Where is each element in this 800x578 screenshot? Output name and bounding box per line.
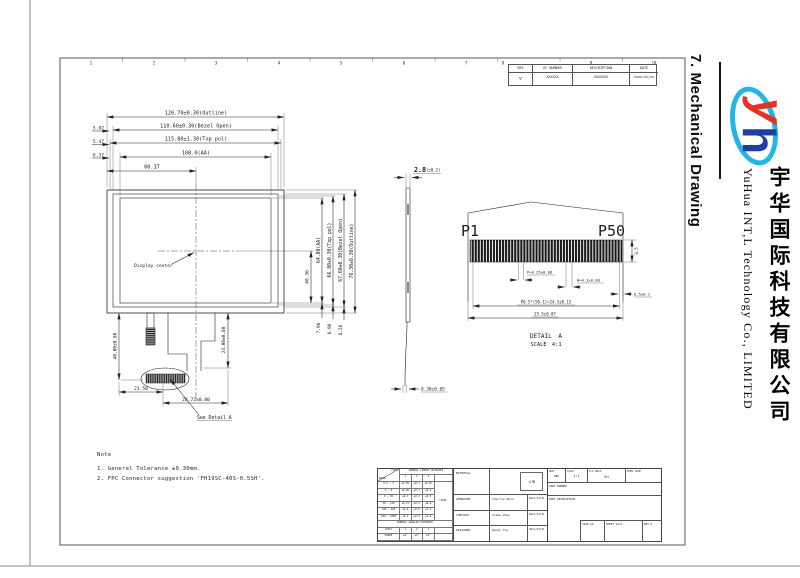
rev-header: DATE [630, 65, 658, 73]
tolerance-range: 120 ~ 400 [378, 508, 400, 515]
sheet-value: 1of1 [616, 522, 622, 526]
tolerance-value: ±0.1 [400, 495, 412, 502]
zone-number: 2 [153, 61, 156, 66]
angular-value: ±3° [423, 534, 435, 541]
tolerance-level-label: LEVEL [391, 469, 398, 473]
zone-number: 3 [215, 61, 218, 66]
sheet-label: SHEET [606, 522, 614, 526]
dim-outline-width: 120.70±0.30(Outline) [165, 111, 227, 117]
angle-projection-icon: ⊕◁ [589, 474, 624, 479]
company-logo: y h [718, 84, 788, 172]
note-line: 1. General Tolerance ±0.30mm. [97, 466, 265, 472]
checked-row: CHECKED Cosmo Zhou 2011/12/21 [454, 511, 547, 527]
designed-name: Karen You [490, 526, 528, 541]
angle-label: 3rd ANGLE [589, 470, 624, 473]
logo-letter-h: h [732, 126, 786, 154]
angular-level: 3 [423, 528, 435, 535]
tolerance-range-label: RANGE [379, 477, 386, 481]
approved-date: 2011/12/21 [528, 495, 547, 510]
rev-date: xxxx/xx/xx [630, 73, 658, 85]
see-detail-label: See Detail A [197, 415, 232, 421]
tolerance-value: ±1.2 [423, 508, 435, 515]
display-center-label: Display center [134, 263, 173, 269]
revision-table: REV EC NUMBER DESCRIPTION DATE ▽ XXXXXX … [508, 64, 657, 86]
company-name-cn: 宇华国际科技有限公司 [764, 166, 794, 426]
model-name-label: MODEL NAME [627, 470, 660, 473]
dim-offset-pol: 5.47 [93, 139, 104, 145]
dim-edge-margin: 0.5±0.1 [634, 292, 651, 297]
third-angle-icon: ◁ [528, 479, 531, 485]
tolerance-value: ±0.2 [423, 489, 435, 496]
tolerance-value: ±2.0 [423, 515, 435, 522]
dim-conn-width: 28.72±0.80 [182, 397, 210, 403]
tolerance-value: ±0.05 [400, 482, 412, 489]
dim-thickness-tol: (±0.2) [426, 168, 440, 173]
rev-label: REV [644, 522, 649, 526]
part-number-label: PART NUMBER [549, 484, 567, 488]
tolerance-value: ±0.15 [400, 502, 412, 509]
tolerance-range: 3 ~ 6 [378, 489, 400, 496]
unit-cell: UNIT mm [548, 469, 566, 482]
tolerance-level-merged: LEVEL [435, 482, 454, 521]
tolerance-value: ±0.05 [400, 489, 412, 496]
dim-center-y: 40.36 [305, 270, 311, 284]
tolerance-value: ±0.15 [423, 482, 435, 489]
dim-thickness: 2.8 [414, 166, 426, 174]
dim-outline-height: 76.30±0.30(Outline) [349, 224, 355, 279]
rev-cell: REV 0 [643, 521, 662, 542]
dim-aa-height: 64.80(AA) [316, 237, 322, 263]
unit-label: UNIT [549, 470, 564, 473]
tolerance-diagonal-cell: LEVEL RANGE [378, 469, 400, 482]
angular-value: ±1° [400, 534, 412, 541]
side-view: 2.8 (±0.2) 0.30±0.05 [391, 166, 447, 393]
checked-name: Cosmo Zhou [490, 511, 528, 526]
tolerance-value: ±0.5 [423, 495, 435, 502]
tolerance-range: 0.5 ~ 3 [378, 482, 400, 489]
size-sheet-rev-box: SIZE A3 SHEET 1of1 REV 0 [580, 520, 662, 542]
sheet-cell: SHEET 1of1 [605, 521, 643, 542]
dim-offset-bezel: 5.07 [93, 126, 104, 132]
part-description-label: PART DESCRIPTION [549, 497, 575, 501]
front-view-width-dimensions: 120.70±0.30(Outline) 110.60±0.30(Bezel O… [92, 111, 284, 197]
tolerance-table: LEVEL RANGE GENERAL LINEAR TOLERANCE 1 2… [378, 469, 454, 541]
angle-cell: 3rd ANGLE ⊕◁ [588, 469, 626, 482]
dim-fpc-thickness: 0.30±0.05 [421, 387, 445, 393]
size-cell: SIZE A3 [581, 521, 605, 542]
approved-name: Charlie Zhou [490, 495, 528, 510]
dim-pin-depth: 3.5 [634, 247, 639, 255]
unit-value: mm [549, 474, 564, 478]
dim-aa-width: 108.0(AA) [182, 151, 210, 157]
scale-cell: SCALE 1:1 [566, 469, 588, 482]
front-view: Display center [107, 184, 284, 399]
tolerance-value: ±0.8 [412, 515, 424, 522]
tolerance-value: ±0.3 [400, 515, 412, 522]
logo-letter-y: y [741, 98, 795, 124]
designed-date: 2011/12/21 [528, 526, 547, 541]
checked-date: 2011/12/21 [528, 511, 547, 526]
dim-fpc-total-width: 25.5±0.07 [534, 312, 556, 317]
dim-bezel-width: 110.60±0.30(Bezel Open) [160, 124, 232, 130]
tolerance-value: ±0.2 [400, 508, 412, 515]
zone-number: 1 [90, 61, 93, 66]
note-block: Note 1. General Tolerance ±0.30mm. 2. FP… [97, 452, 265, 486]
pin-first-label: P1 [461, 222, 479, 240]
part-description-cell: PART DESCRIPTION SIZE A3 SHEET 1of1 REV … [548, 496, 661, 541]
tolerance-level: 1 [400, 475, 412, 482]
note-title: Note [97, 452, 265, 458]
approval-column: MATERIAL ◁⊕ APPROVED Charlie Zhou 2011/1… [454, 469, 548, 541]
projection-symbol: ◁⊕ [520, 472, 543, 491]
dim-fpc-drop2: 24.00±0.80 [221, 326, 227, 353]
zone-number: 4 [278, 61, 281, 66]
angular-value: ±2° [412, 534, 424, 541]
angular-level: 1 [400, 528, 412, 535]
tolerance-value: ±0.3 [412, 502, 424, 509]
dim-fpc-drop: 40.00±0.80 [113, 332, 119, 359]
model-name-cell: MODEL NAME [626, 469, 661, 482]
dim-toppol-width: 115.80±1.30(Top pol) [165, 137, 227, 143]
designed-row: DESIGNED Karen You 2011/12/21 [454, 526, 547, 541]
dim-toppol-height: 66.80±0.30(Top pol) [327, 223, 333, 278]
title-block: LEVEL RANGE GENERAL LINEAR TOLERANCE 1 2… [377, 468, 662, 542]
rev-header: REV [509, 65, 533, 73]
tolerance-value: ±0.2 [412, 495, 424, 502]
material-label: MATERIAL [454, 469, 490, 494]
datasheet-page: 1 2 3 4 5 6 7 8 9 10 Display center 120.… [0, 0, 800, 578]
approved-label: APPROVED [454, 495, 490, 510]
checked-label: CHECKED [454, 511, 490, 526]
dim-pad-width: W=0.3±0.08 [577, 278, 601, 283]
zone-number: 5 [340, 61, 343, 66]
scale-label: SCALE [567, 470, 586, 473]
part-number-cell: PART NUMBER [548, 483, 661, 496]
drawing-info-column: UNIT mm SCALE 1:1 3rd ANGLE ⊕◁ MODEL NAM… [548, 469, 661, 541]
front-view-height-dimensions: 40.36 64.80(AA) 66.80±0.30(Top pol) 67.6… [236, 190, 357, 335]
projection-circle-icon: ⊕ [532, 479, 535, 485]
size-value: A3 [590, 522, 593, 526]
dim-bezel-height: 67.60±0.30(Bezel Open) [338, 218, 344, 282]
rev-ec-number: XXXXXX [533, 73, 573, 85]
dim-bottom-pol: 7.96 [316, 322, 322, 333]
tolerance-range: 6 ~ 30 [378, 495, 400, 502]
dim-bottom-outline: 6.56 [338, 324, 344, 335]
tolerance-value: ±0.8 [423, 502, 435, 509]
material-row: MATERIAL ◁⊕ [454, 469, 547, 495]
dim-conn-x1: 21.50 [134, 386, 148, 392]
pin-last-label: P50 [598, 222, 625, 240]
section-heading: 7. Mechanical Drawing [687, 54, 704, 227]
rev-description: XXXXXXX [573, 73, 630, 85]
zone-number: 8 [502, 61, 505, 66]
tolerance-value: ±0.1 [412, 489, 424, 496]
angular-level: 2 [412, 528, 424, 535]
dim-center-x: 60.37 [144, 165, 160, 171]
approved-row: APPROVED Charlie Zhou 2011/12/21 [454, 495, 547, 511]
detail-a-scale: SCALE 4:1 [530, 342, 561, 348]
angular-level-label: LEVEL [378, 528, 400, 535]
zone-number: 6 [403, 61, 406, 66]
detail-a-view: P1 P50 3.5 P=0.25±0.08 W=0.3±0.08 0.5±0.… [461, 202, 652, 348]
dim-bottom-bezel: 6.96 [327, 323, 333, 334]
tolerance-level: 3 [423, 475, 435, 482]
tolerance-level: 2 [412, 475, 424, 482]
size-label: SIZE [582, 522, 588, 526]
designed-label: DESIGNED [454, 526, 490, 541]
tolerance-range: 400 ~ 1000 [378, 515, 400, 522]
tolerance-value: ±0.5 [412, 508, 424, 515]
company-name-en: YuHua INT,L Technology Co., LIMITED [740, 168, 755, 410]
rev-symbol: ▽ [509, 73, 533, 85]
zone-number: 7 [465, 61, 468, 66]
fpc-tail: 40.00±0.80 24.00±0.80 21.50 28.72±0.80 S… [113, 313, 233, 421]
dim-pitch-total: P0.5*(50-1)=24.5±0.15 [521, 300, 572, 305]
note-line: 2. FPC Connector suggestion 'FH19SC-40S-… [97, 476, 265, 482]
rev-header: EC NUMBER [533, 65, 573, 73]
detail-a-title: DETAIL A [530, 333, 562, 340]
dim-offset-aa: 6.37 [93, 153, 104, 159]
tolerance-range: 30 ~ 120 [378, 502, 400, 509]
dim-pin-gap: P=0.25±0.08 [527, 270, 553, 275]
angular-range-label: RANGE [378, 534, 400, 541]
scale-value: 1:1 [567, 474, 586, 478]
rev-value: 0 [650, 522, 652, 526]
tolerance-value: ±0.1 [412, 482, 424, 489]
rev-header: DESCRIPTION [573, 65, 630, 73]
